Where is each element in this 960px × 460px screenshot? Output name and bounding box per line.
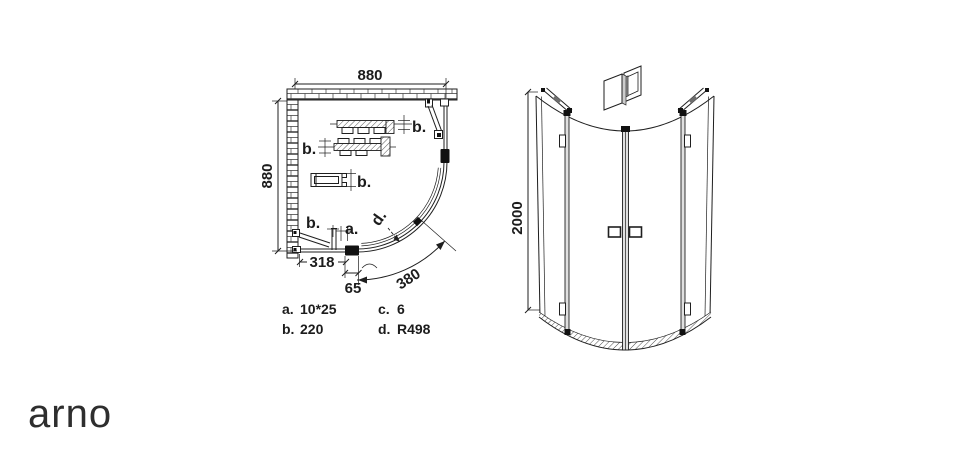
- legend-a-key: a.: [282, 301, 294, 317]
- dimension-height-2000: 2000: [509, 89, 540, 313]
- support-bar-top-right: [426, 99, 449, 139]
- dim-hinge-offset-value: 65: [345, 280, 362, 297]
- dimension-fixed-panel: 318: [297, 254, 349, 271]
- wall-profile-section-detail: [318, 115, 412, 157]
- legend-d-key: d.: [378, 321, 390, 337]
- support-brace-top-right: [678, 88, 709, 113]
- glass-clamp-icon: [604, 66, 641, 110]
- dimension-hinge-offset: 65: [342, 256, 362, 297]
- technical-drawing-sheet: 880 880 318 65: [0, 0, 960, 460]
- dimension-arc-length: 380: [357, 221, 456, 293]
- callout-d-label: d.: [368, 208, 390, 229]
- door-handle-left: [609, 227, 621, 237]
- legend: a. 10*25 b. 220 c. 6 d. R498: [282, 301, 431, 337]
- support-brace-top-left: [541, 88, 572, 113]
- hinge-block-right: [441, 149, 450, 163]
- legend-b-value: 220: [300, 321, 324, 337]
- magnet-strip-mark: [415, 219, 420, 224]
- elevation-view-drawing: 2000: [505, 55, 730, 365]
- hinge-block-bottom: [345, 246, 359, 256]
- legend-d-value: R498: [397, 321, 431, 337]
- dim-height-2000-value: 2000: [509, 201, 526, 234]
- legend-c-value: 6: [397, 301, 405, 317]
- legend-b-key: b.: [282, 321, 294, 337]
- callout-b1: b.: [412, 119, 426, 136]
- hinge-post-right: [680, 110, 691, 335]
- callout-d: d.: [368, 208, 400, 242]
- door-handle-right: [630, 227, 642, 237]
- center-door-stiles: [621, 126, 630, 350]
- legend-c-key: c.: [378, 301, 390, 317]
- plan-view-drawing: 880 880 318 65: [255, 50, 465, 360]
- callout-b2: b.: [302, 141, 316, 158]
- brand-logo: arno: [28, 394, 112, 434]
- callout-b3: b.: [357, 174, 371, 191]
- dim-arc-length-value: 380: [393, 265, 423, 293]
- dim-width-top-value: 880: [357, 67, 382, 84]
- wall-top: [287, 89, 457, 100]
- callout-b4: b.: [306, 215, 320, 232]
- callout-a: a.: [345, 221, 358, 238]
- legend-a-value: 10*25: [300, 301, 337, 317]
- dim-fixed-panel-value: 318: [309, 254, 334, 271]
- dim-height-left-value: 880: [259, 163, 276, 188]
- hinge-post-left: [560, 110, 571, 335]
- tube-profile-section-detail: [311, 169, 356, 191]
